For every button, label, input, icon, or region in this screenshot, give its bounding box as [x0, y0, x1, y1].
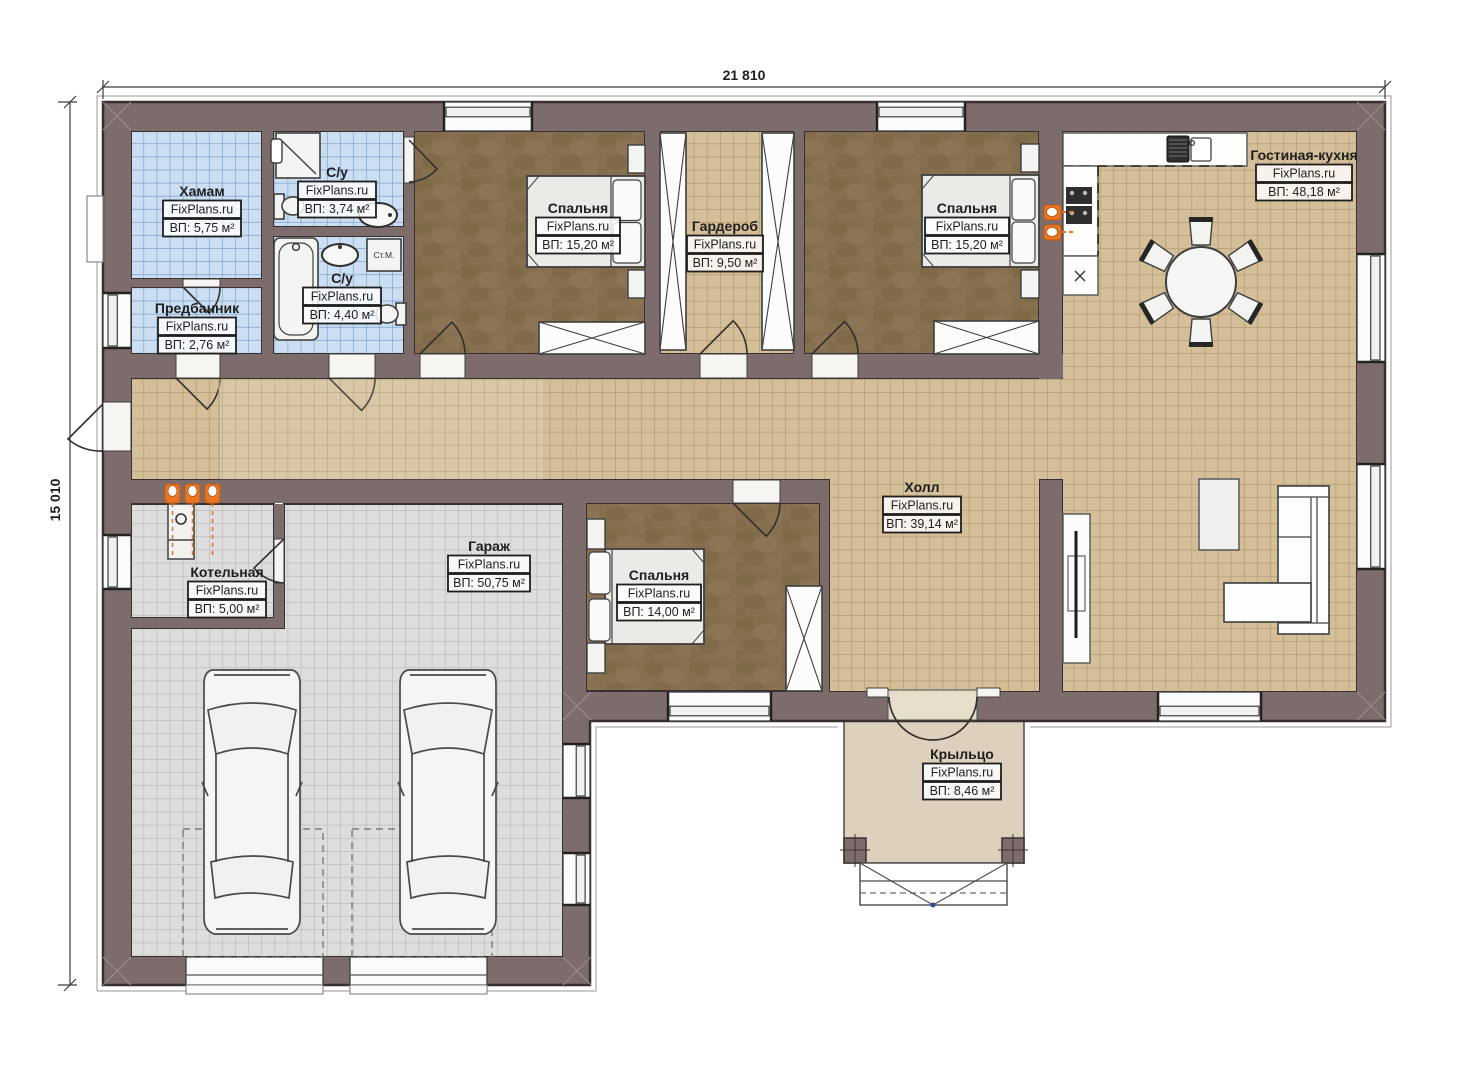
svg-text:FixPlans.ru: FixPlans.ru [171, 203, 234, 217]
svg-text:Котельная: Котельная [190, 564, 263, 580]
svg-text:Крыльцо: Крыльцо [930, 746, 994, 762]
svg-text:Предбанник: Предбанник [155, 300, 240, 316]
svg-text:FixPlans.ru: FixPlans.ru [311, 290, 374, 304]
svg-text:FixPlans.ru: FixPlans.ru [891, 499, 954, 513]
svg-text:ВП: 15,20 м²: ВП: 15,20 м² [542, 238, 614, 252]
svg-text:FixPlans.ru: FixPlans.ru [694, 238, 757, 252]
svg-text:ВП: 3,74 м²: ВП: 3,74 м² [305, 202, 370, 216]
svg-text:ВП: 8,46 м²: ВП: 8,46 м² [930, 784, 995, 798]
svg-text:FixPlans.ru: FixPlans.ru [936, 220, 999, 234]
svg-text:FixPlans.ru: FixPlans.ru [458, 558, 521, 572]
svg-text:Спальня: Спальня [548, 200, 608, 216]
svg-text:Холл: Холл [904, 479, 939, 495]
svg-text:ВП: 9,50 м²: ВП: 9,50 м² [693, 256, 758, 270]
svg-text:Гардероб: Гардероб [692, 218, 759, 234]
svg-text:ВП: 50,75 м²: ВП: 50,75 м² [453, 576, 525, 590]
svg-text:ВП: 4,40 м²: ВП: 4,40 м² [310, 308, 375, 322]
svg-text:Спальня: Спальня [629, 567, 689, 583]
svg-text:Спальня: Спальня [937, 200, 997, 216]
svg-text:С/у: С/у [331, 270, 353, 286]
svg-text:ВП: 14,00 м²: ВП: 14,00 м² [623, 605, 695, 619]
svg-text:ВП: 5,75 м²: ВП: 5,75 м² [170, 221, 235, 235]
svg-text:15 010: 15 010 [47, 478, 63, 521]
svg-text:FixPlans.ru: FixPlans.ru [306, 184, 369, 198]
svg-text:Гараж: Гараж [468, 538, 511, 554]
svg-text:Гостиная-кухня: Гостиная-кухня [1250, 147, 1357, 163]
svg-text:FixPlans.ru: FixPlans.ru [1273, 167, 1336, 181]
svg-text:FixPlans.ru: FixPlans.ru [931, 766, 994, 780]
svg-text:21 810: 21 810 [723, 67, 766, 83]
svg-text:ВП: 2,76 м²: ВП: 2,76 м² [165, 338, 230, 352]
svg-text:FixPlans.ru: FixPlans.ru [547, 220, 610, 234]
svg-text:ВП: 48,18 м²: ВП: 48,18 м² [1268, 185, 1340, 199]
svg-text:Ст.М.: Ст.М. [374, 250, 395, 260]
svg-text:ВП: 39,14 м²: ВП: 39,14 м² [886, 517, 958, 531]
svg-text:С/у: С/у [326, 164, 348, 180]
svg-text:ВП: 5,00 м²: ВП: 5,00 м² [195, 602, 260, 616]
svg-text:ВП: 15,20 м²: ВП: 15,20 м² [931, 238, 1003, 252]
svg-text:FixPlans.ru: FixPlans.ru [628, 587, 691, 601]
svg-text:FixPlans.ru: FixPlans.ru [196, 584, 259, 598]
svg-text:FixPlans.ru: FixPlans.ru [166, 320, 229, 334]
svg-text:Хамам: Хамам [179, 183, 224, 199]
